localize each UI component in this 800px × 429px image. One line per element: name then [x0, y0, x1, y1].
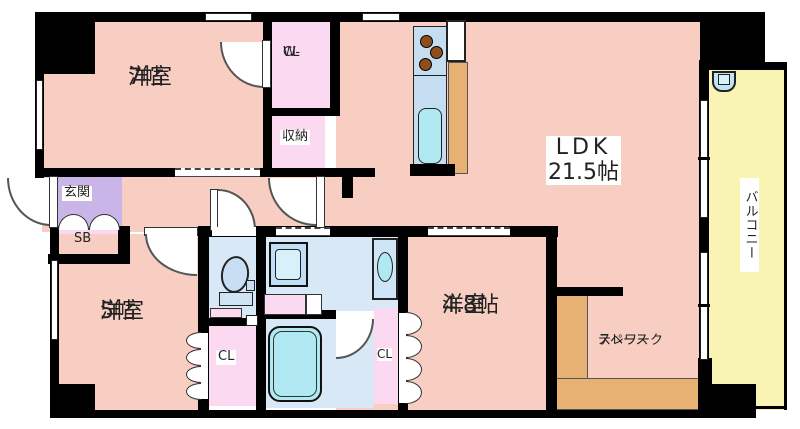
balcony-bottom-line [754, 406, 787, 409]
telework-line2: スペース [598, 334, 648, 349]
label-closet-east: CL [377, 348, 392, 361]
wall-kitchen-end [410, 164, 455, 176]
stove-burner [430, 46, 443, 59]
washroom-cabinet-white [306, 294, 322, 315]
label-closet-west: CL [216, 350, 236, 365]
door-leaf-room7 [262, 40, 271, 88]
stove-burner [420, 35, 433, 48]
wall-room48-right [546, 226, 557, 416]
door-opening-bath [336, 311, 374, 319]
sliding-window-room48 [428, 227, 510, 236]
wcl-line2: CL [283, 46, 299, 61]
window-top-left [205, 13, 252, 21]
stove-burner [419, 58, 432, 71]
label-ldk: LDK 21.5帖 [546, 136, 621, 185]
label-balcony: バルコニー [740, 178, 759, 272]
wall-pillar-bottomright-h [710, 384, 756, 418]
window-top-mid [362, 13, 400, 21]
wall-wcl-right [330, 12, 340, 116]
window-kitchen-opening [446, 20, 466, 62]
bathtub-inner [273, 331, 317, 397]
washbasin-bowl [377, 252, 393, 282]
wall-sb-right [118, 226, 130, 264]
balcony-right-line [784, 62, 787, 410]
toilet-base [219, 292, 253, 306]
wall-bottom [50, 410, 712, 418]
kitchen-side-counter [448, 62, 468, 174]
ldk-name: LDK [548, 136, 619, 161]
label-genkan: 玄関 [62, 186, 92, 201]
wall-hall-stub [342, 168, 353, 198]
room-size: 7帖 [128, 66, 164, 91]
balcony-slop-sink-basin [718, 74, 730, 85]
wall-niche-white [246, 315, 258, 326]
door-leaf-entrance [49, 176, 58, 228]
window-left-upper [36, 80, 43, 150]
walk-in-closet [270, 20, 332, 114]
window-left-lower [51, 260, 58, 340]
floor-plan: 洋室 7帖 W- CL 収納 LDK 21.5帖 玄関 SB 洋室 5帖 CL … [0, 0, 800, 429]
washing-machine-drum [275, 249, 301, 280]
window-tick [698, 304, 710, 307]
washroom-cabinet-pink [264, 294, 306, 315]
wall-pillar-topleft [35, 12, 95, 74]
kitchen-sink [418, 108, 442, 164]
door-leaf-hall-ldk [316, 176, 325, 228]
balcony-top-bar [705, 62, 787, 70]
wall-telework-stub [557, 287, 623, 296]
ldk-size: 21.5帖 [548, 161, 619, 186]
door-opening-toilet [212, 227, 256, 236]
door-leaf-toilet [210, 189, 218, 231]
window-tick [698, 157, 710, 160]
room-size: 4.8帖 [442, 294, 499, 319]
toilet-flush-box [246, 280, 255, 291]
telework-desk-horizontal [556, 378, 704, 410]
room-size: 5帖 [100, 300, 136, 325]
room-western48 [406, 236, 552, 412]
label-shoebox: SB [72, 232, 93, 247]
closet-west [207, 324, 258, 406]
label-storage: 収納 [280, 130, 310, 145]
sliding-door-washroom [276, 227, 330, 236]
wall-pillar-bottomleft [59, 384, 95, 412]
sliding-door-room7 [175, 168, 260, 177]
door-arc-entrance [7, 178, 51, 226]
toilet-cabinet [210, 308, 242, 318]
wall-wcl-storage-divider [270, 108, 330, 116]
